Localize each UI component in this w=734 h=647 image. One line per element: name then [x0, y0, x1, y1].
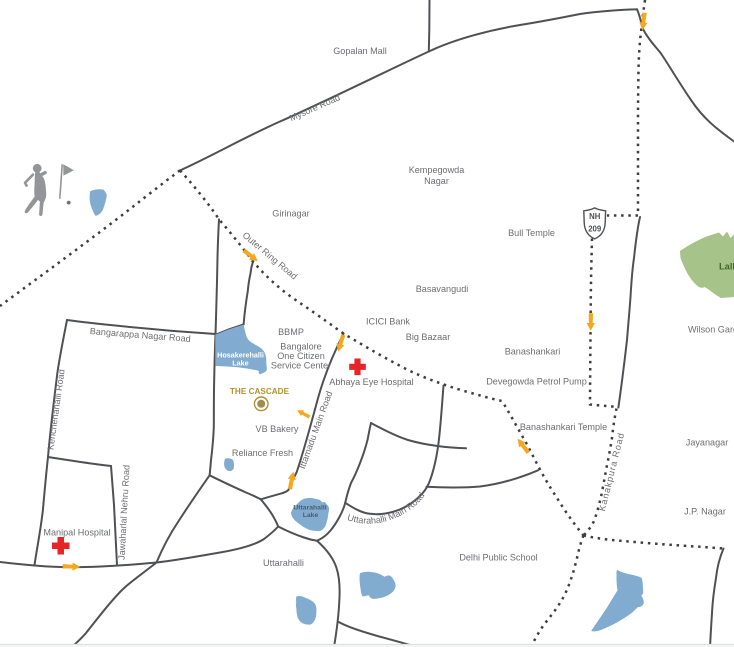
svg-text:THE CASCADE: THE CASCADE — [230, 387, 290, 396]
svg-text:Reliance Fresh: Reliance Fresh — [232, 448, 293, 458]
svg-text:Lake: Lake — [303, 512, 319, 519]
svg-text:NH: NH — [589, 212, 601, 221]
svg-text:BBMP: BBMP — [278, 327, 304, 337]
svg-text:Jayanagar: Jayanagar — [686, 438, 728, 448]
svg-text:Big Bazaar: Big Bazaar — [406, 332, 450, 342]
svg-text:Nagar: Nagar — [424, 176, 449, 186]
svg-text:One Citizen: One Citizen — [277, 351, 325, 361]
svg-text:Devegowda Petrol Pump: Devegowda Petrol Pump — [486, 377, 587, 387]
svg-text:Lalbagh: Lalbagh — [719, 262, 734, 272]
svg-text:Banashankari: Banashankari — [505, 347, 561, 357]
svg-text:Uttarahalli: Uttarahalli — [293, 505, 326, 512]
svg-text:ICICI Bank: ICICI Bank — [366, 317, 410, 327]
svg-text:Gopalan Mall: Gopalan Mall — [333, 46, 387, 56]
svg-text:Manipal Hospital: Manipal Hospital — [43, 528, 110, 538]
svg-text:Kempegowda: Kempegowda — [409, 165, 466, 175]
svg-text:Basavangudi: Basavangudi — [416, 284, 469, 294]
svg-text:Uttarahalli: Uttarahalli — [263, 558, 304, 568]
svg-text:J.P. Nagar: J.P. Nagar — [684, 507, 726, 517]
svg-text:Banashankari Temple: Banashankari Temple — [520, 422, 607, 432]
svg-text:209: 209 — [588, 224, 602, 233]
svg-text:Bull Temple: Bull Temple — [508, 228, 555, 238]
svg-text:Girinagar: Girinagar — [272, 209, 309, 219]
svg-text:Lake: Lake — [232, 358, 248, 367]
svg-text:VB Bakery: VB Bakery — [256, 424, 299, 434]
svg-text:Bangalore: Bangalore — [280, 342, 321, 352]
svg-text:Wilson Garden: Wilson Garden — [688, 325, 734, 335]
svg-text:Delhi Public School: Delhi Public School — [459, 553, 537, 563]
svg-text:Service Center: Service Center — [271, 361, 331, 371]
svg-text:Abhaya Eye Hospital: Abhaya Eye Hospital — [329, 377, 413, 387]
